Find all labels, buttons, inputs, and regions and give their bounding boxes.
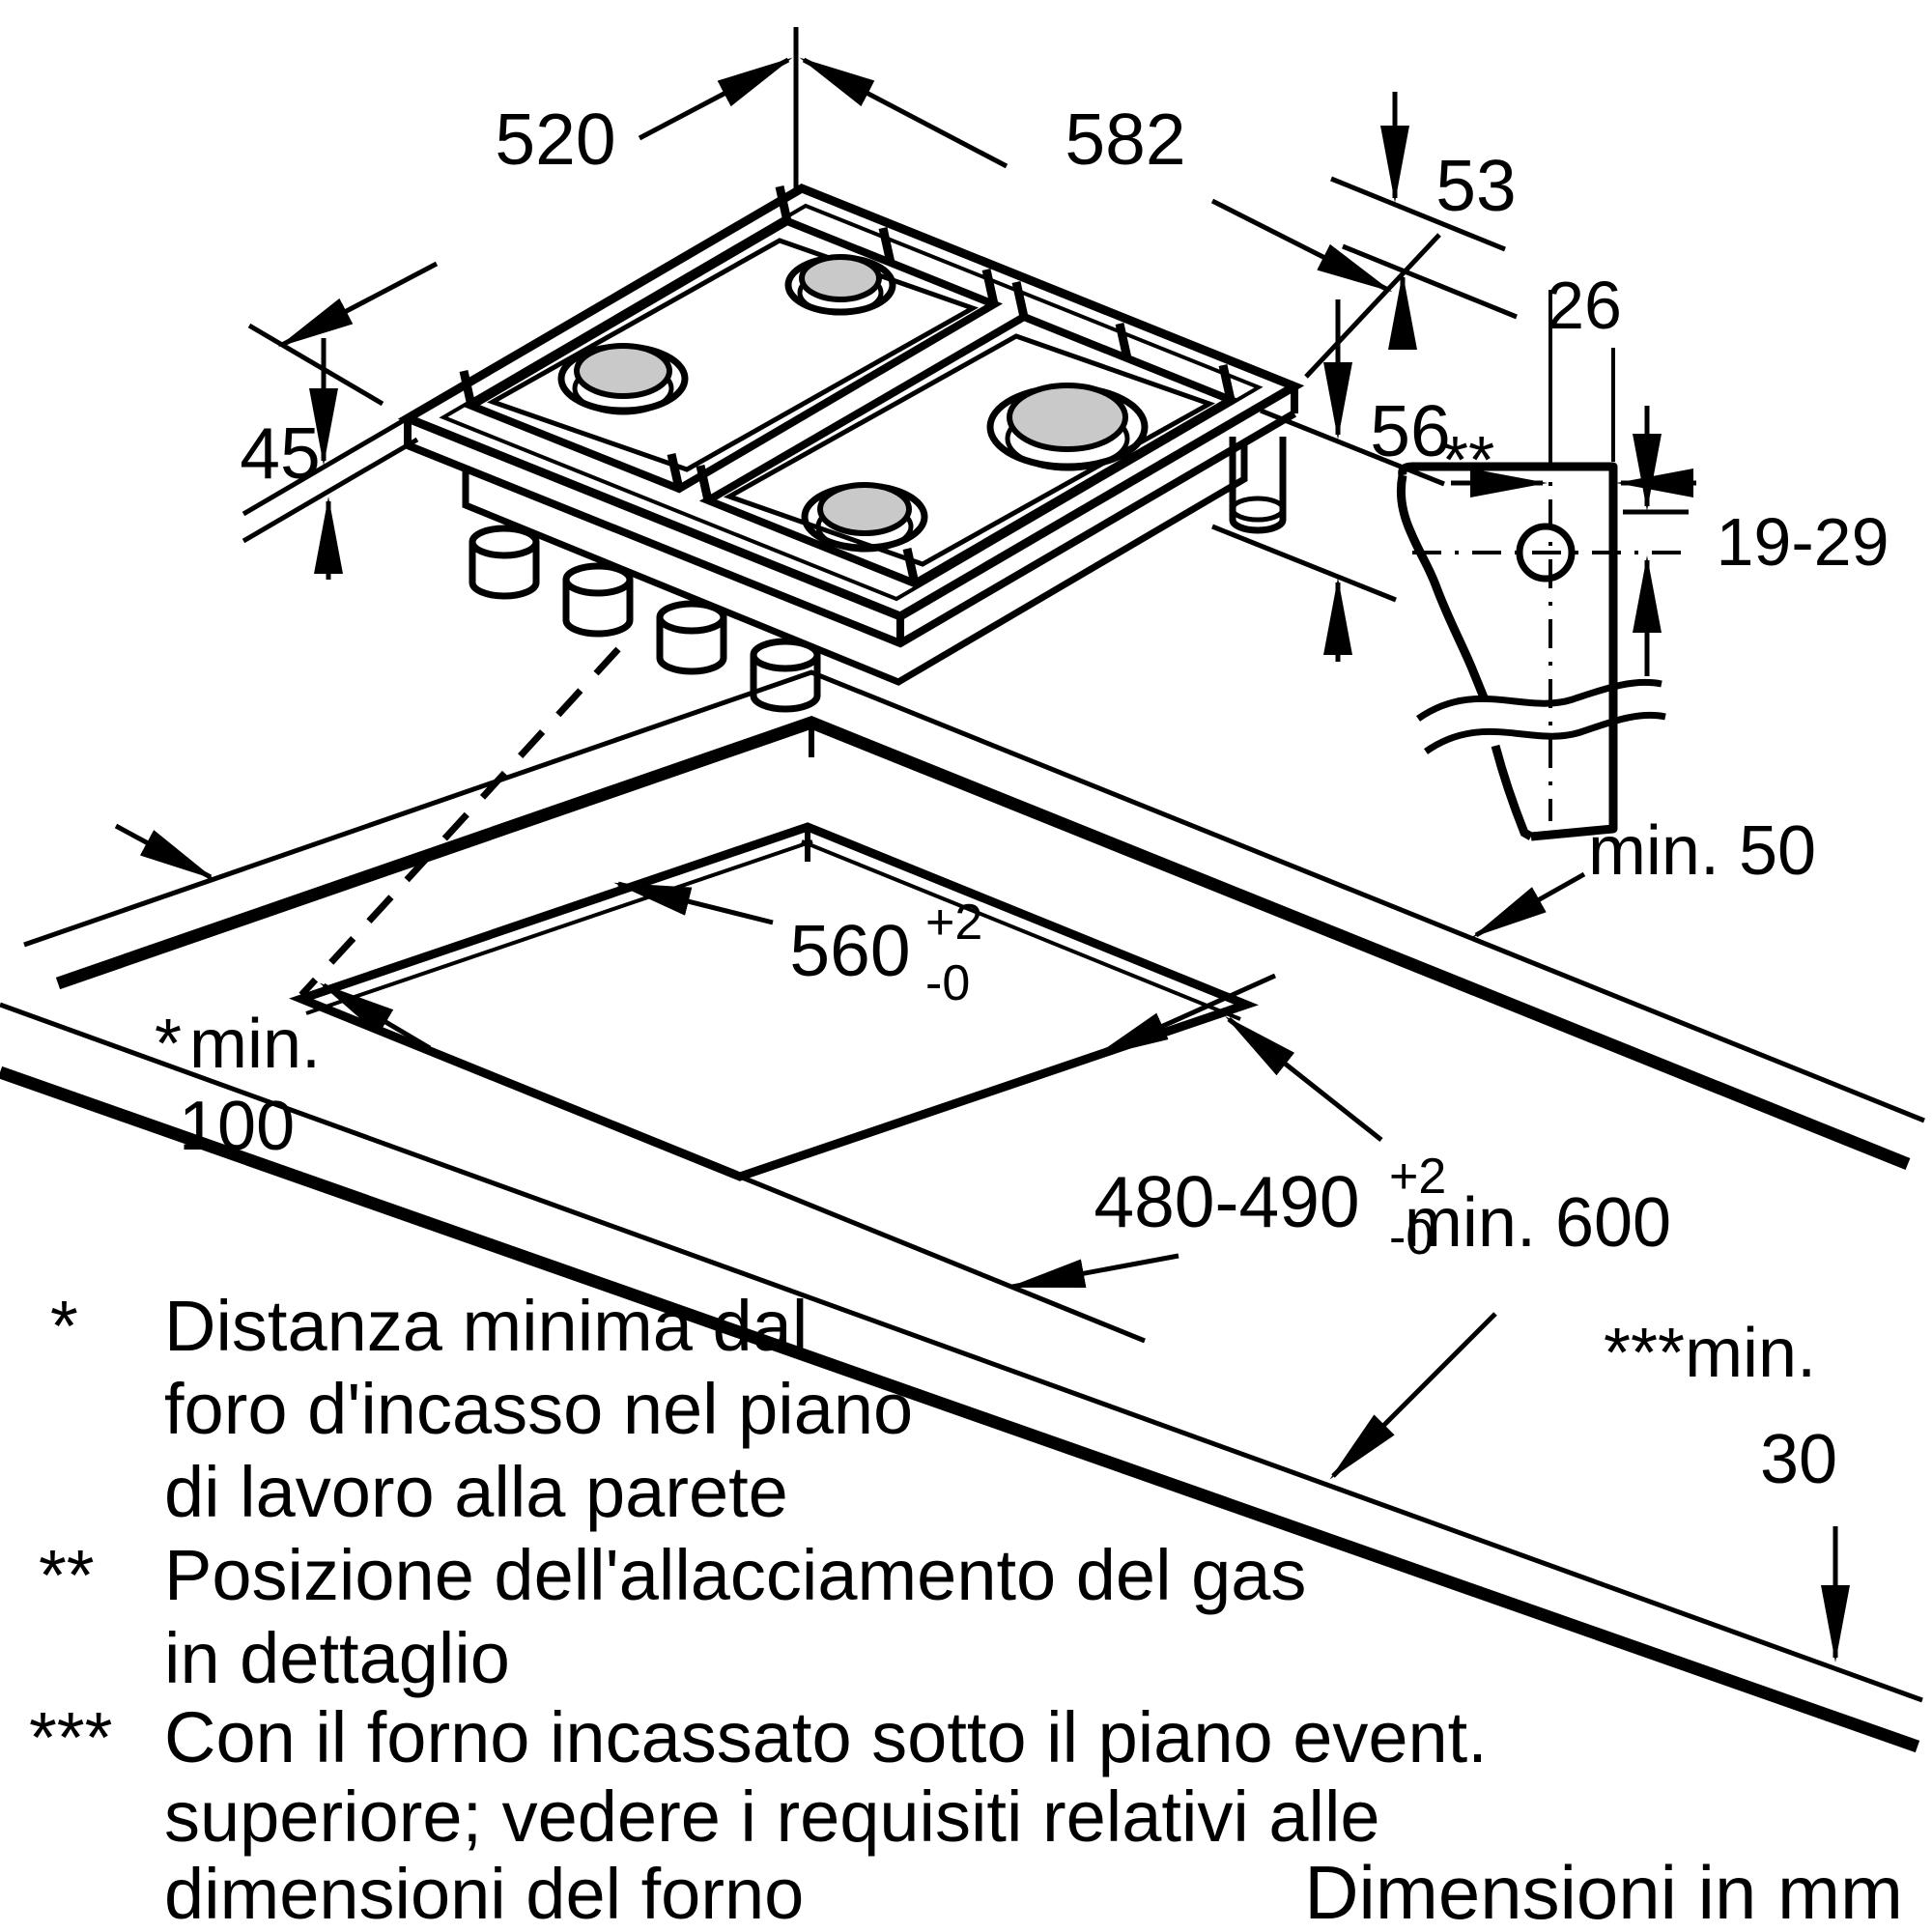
footnote-line: Con il forno incassato sotto il piano ev… [164,1697,1488,1777]
knob [472,528,536,596]
burner-front [805,485,924,550]
break-line [1426,715,1665,752]
footnote-marker: * [50,1286,78,1366]
hob-top-height-label: 53 [1435,145,1516,226]
units-note: Dimensioni in mm [1304,1850,1903,1932]
footnote-line: Distanza minima dal [164,1286,808,1366]
burner-cap [1009,385,1125,449]
burner-cap [820,485,909,533]
footnote-marker: ** [39,1535,95,1615]
footnote-line: dimensioni del forno [164,1854,804,1932]
hob-drawing [408,186,1294,709]
knob [566,566,630,634]
control-knobs [472,528,817,709]
dimension-560: 560 +2 -0 [618,884,982,1011]
installation-diagram-page: 520 582 53 56 45 [0,0,1932,1932]
hob-edge-height-label: 45 [240,412,320,494]
burner-cap [802,257,879,299]
gas-connection-detail: 26 ** 19-29 [1401,268,1889,837]
footnote-line: in dettaglio [164,1618,510,1698]
burner-right-large [990,385,1145,469]
wall-gap-label: min. 50 [1588,812,1816,890]
footnote-line: Posizione dell'allacciamento del gas [164,1535,1306,1615]
knob [660,604,724,671]
cutout-width-tol-plus: +2 [925,895,982,951]
gas-position-marker: ** [1442,422,1494,497]
burner-left [561,346,685,412]
footnote-marker: *** [29,1697,112,1777]
dimension-19-29: 19-29 [1623,406,1889,676]
dimension-min-600: min. 600 [1229,1019,1671,1476]
burner-back [788,257,893,313]
footnote-line: superiore; vedere i requisiti relativi a… [164,1776,1380,1857]
dimension-53: 53 [1331,92,1517,343]
cutout-width-label: 560 [789,910,910,991]
oven-gap-label-line1: ***min. [1604,1315,1816,1392]
oven-gap-label-line2: 30 [1760,1421,1837,1498]
burner-cap [577,346,669,396]
dimension-56: 56 [1212,299,1451,662]
hob-width-label: 582 [1065,99,1185,180]
footnote-line: di lavoro alla parete [164,1452,788,1532]
gas-height-range-label: 19-29 [1716,504,1889,580]
side-gap-label-line1: *min. [155,1006,321,1083]
footnote-line: foro d'incasso nel piano [164,1369,913,1449]
cutout-width-tol-minus: -0 [925,955,970,1011]
footnotes: * Distanza minima dal foro d'incasso nel… [29,1286,1488,1932]
installation-diagram: 520 582 53 56 45 [0,0,1932,1932]
dimension-min-30: ***min. 30 [1604,1315,1837,1658]
cutout-depth-label: 480-490 [1094,1161,1359,1242]
gas-offset-label: 26 [1547,268,1622,343]
hob-body-height-label: 56 [1370,390,1450,471]
side-gap-label-line2: 100 [179,1088,295,1165]
dimension-480-490: 480-490 +2 -0 [740,976,1446,1341]
front-depth-label: min. 600 [1405,1184,1671,1262]
cutout-hole [301,827,1246,1177]
break-line [1418,682,1662,719]
hob-depth-label: 520 [495,99,615,180]
hob-top-surface [408,188,1294,616]
